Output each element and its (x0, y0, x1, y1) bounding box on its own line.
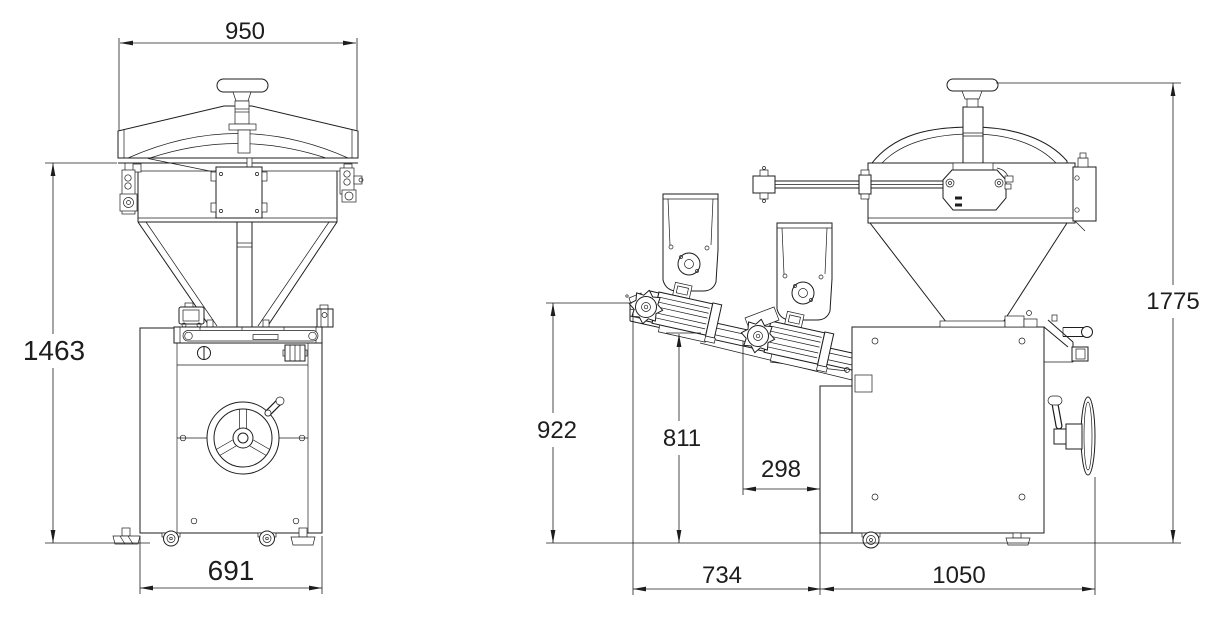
dim-label-734: 734 (702, 562, 742, 589)
dim-label-691: 691 (208, 555, 255, 586)
dimension-feeder-inlet-height: 922 (537, 303, 632, 543)
side-hopper (753, 79, 1096, 231)
front-lid-box (211, 158, 267, 218)
side-right-panel (1073, 153, 1096, 231)
dimension-overall-height-front: 1463 (23, 163, 150, 543)
dim-label-1463: 1463 (23, 335, 85, 366)
dim-label-811: 811 (663, 425, 701, 452)
front-top-fixtures (179, 303, 333, 327)
side-grip-bracket (1044, 315, 1093, 362)
front-control-knob (198, 346, 211, 360)
side-handwheel-crank (1048, 396, 1062, 426)
side-handwheel (1048, 396, 1095, 475)
dim-label-1050: 1050 (932, 562, 985, 589)
side-view: 1775 922 811 (537, 79, 1200, 595)
side-hopper-cone (870, 223, 1067, 327)
dim-label-922: 922 (537, 417, 577, 444)
front-tray (174, 327, 322, 343)
dim-label-950: 950 (225, 18, 265, 45)
side-top-handwheel (947, 79, 998, 107)
side-chute-2 (777, 223, 832, 320)
side-body (852, 327, 1044, 548)
front-hopper-column (237, 222, 252, 328)
front-latch-right (340, 164, 363, 202)
front-switch-panel (283, 345, 307, 361)
side-top-fittings (940, 311, 1037, 328)
side-outlet-panel (820, 386, 852, 533)
front-view: 950 1463 691 (23, 18, 363, 594)
dimension-feeder-low-height: 811 (663, 333, 701, 543)
dim-label-1775: 1775 (1146, 288, 1199, 315)
technical-drawing: 950 1463 691 (0, 0, 1223, 634)
dim-label-298: 298 (761, 456, 801, 483)
side-chute-1 (663, 194, 718, 291)
side-column (963, 107, 983, 163)
drawing-canvas: 950 1463 691 (0, 0, 1223, 634)
